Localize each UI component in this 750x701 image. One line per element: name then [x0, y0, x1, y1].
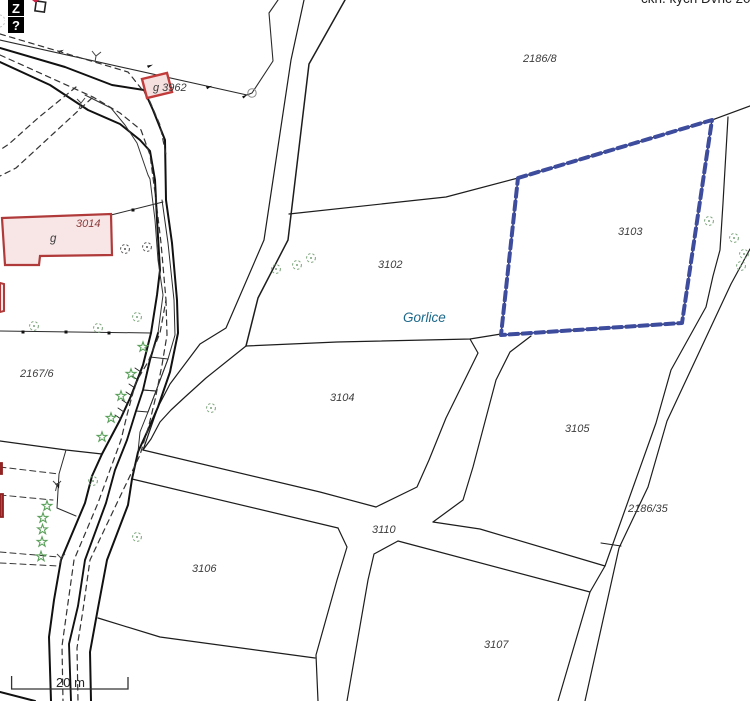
svg-text:3110: 3110 [372, 524, 397, 536]
svg-text:3102: 3102 [378, 259, 402, 271]
svg-text:2186/35: 2186/35 [627, 503, 669, 515]
svg-text:3107: 3107 [484, 639, 509, 651]
svg-text:3105: 3105 [565, 423, 590, 435]
svg-text:Z: Z [12, 1, 20, 16]
svg-text:2186/8: 2186/8 [522, 53, 558, 65]
svg-text:?: ? [12, 18, 20, 33]
svg-text:2167/6: 2167/6 [19, 368, 55, 380]
svg-text:20 m: 20 m [56, 675, 85, 690]
svg-text:3014: 3014 [76, 218, 100, 230]
svg-text:3106: 3106 [192, 563, 217, 575]
svg-text:g 3962: g 3962 [153, 82, 187, 94]
svg-text:3104: 3104 [330, 392, 354, 404]
svg-text:Gorlice: Gorlice [403, 310, 446, 325]
svg-text:3103: 3103 [618, 226, 643, 238]
svg-text:g: g [50, 233, 57, 245]
